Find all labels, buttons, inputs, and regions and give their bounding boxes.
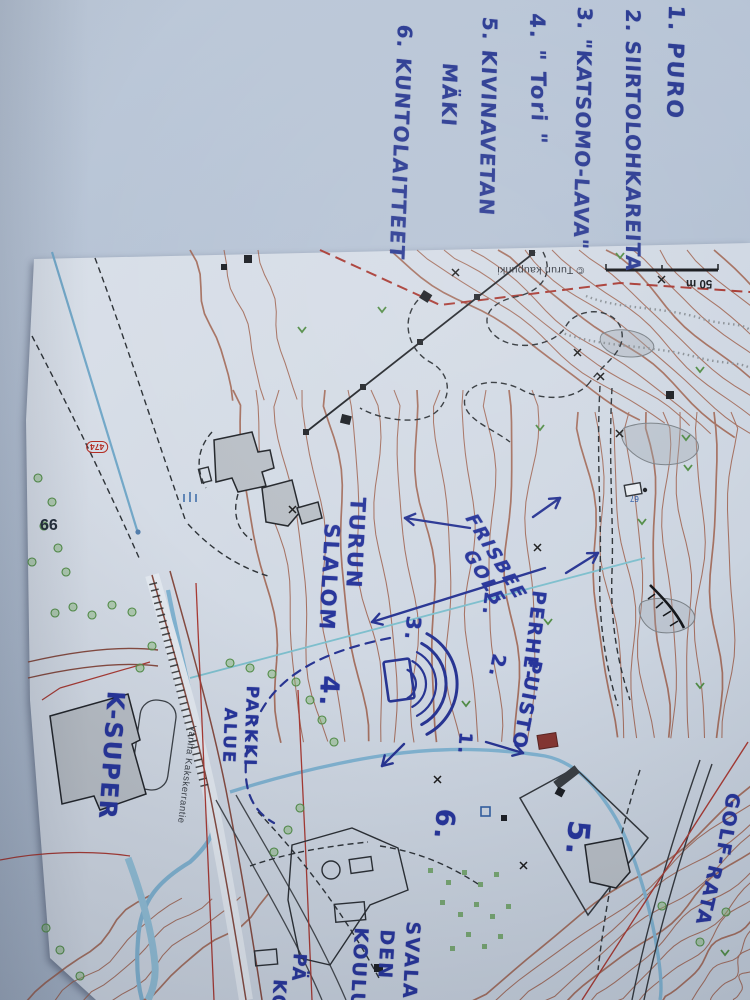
marker-3: 3. [400, 615, 426, 643]
road-number-badge: 474 [86, 441, 108, 453]
note-line-2: 2. SIIRTOLOHKAREITA [621, 8, 645, 272]
marker-2a: 2. [478, 591, 502, 618]
annotation-school-2: DEN [373, 929, 398, 981]
annotation-turun-slalom-1: TURUN [341, 497, 370, 590]
note-line-4: 4. " Tori " [525, 13, 551, 146]
scale-label: 50 m [686, 277, 712, 289]
photo-of-annotated-map: 1. PURO 2. SIIRTOLOHKAREITA 3. "KATSOMO-… [0, 0, 750, 1000]
marker-2b: 2. [484, 652, 510, 680]
building-number-label: 99 [40, 514, 58, 532]
annotation-parkki-1: PARKKI [239, 685, 262, 767]
house-67-label: 67 [630, 494, 639, 503]
annotation-school-1: SVALA [398, 921, 424, 1000]
marker-4: 4. [313, 675, 344, 708]
annotation-edge-cut-2: KO [267, 979, 290, 1000]
marker-6: 6. [427, 807, 460, 841]
marker-5: 5. [558, 819, 596, 858]
note-line-1: 1. PURO [661, 4, 688, 121]
note-line-5b: MÄKI [437, 62, 462, 128]
note-line-3: 3. "KATSOMO-LAVA" [569, 6, 597, 251]
annotation-edge-cut-1: PÄ [287, 953, 310, 984]
annotation-school-3: KOULU [346, 927, 372, 1000]
note-line-5: 5. KIVINAVETAN [475, 16, 502, 218]
annotation-parkki-2: ALUE [218, 707, 240, 764]
marker-1: 1. [453, 731, 476, 756]
map-credit: © Turun kaupunki [497, 264, 584, 276]
